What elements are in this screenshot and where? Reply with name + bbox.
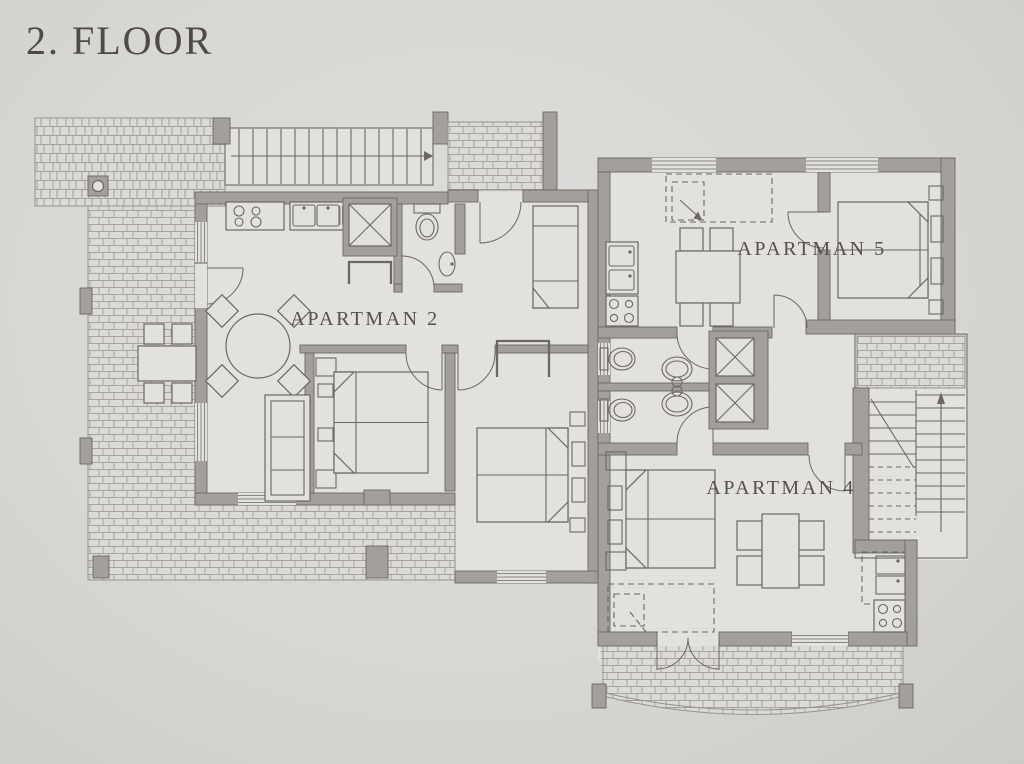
chair-icon: [710, 228, 733, 251]
stove-icon: [874, 600, 905, 632]
floor-plan: 2. FLOOR: [0, 0, 1024, 764]
stove-icon: [226, 202, 284, 230]
elevator-shaft-icon: [709, 331, 768, 429]
chair-icon: [799, 556, 824, 585]
apartment-2-label: APARTMAN 2: [290, 308, 439, 330]
pilaster: [592, 684, 606, 708]
chair-icon: [144, 324, 164, 344]
terrace-column: [88, 176, 108, 196]
pilaster: [80, 438, 92, 464]
straight-staircase-icon: [213, 112, 448, 185]
pilaster: [80, 288, 92, 314]
chair-icon: [680, 303, 703, 326]
chair-icon: [737, 521, 762, 550]
scanned-floor-plan-page: 2. FLOOR: [0, 0, 1024, 764]
chair-icon: [680, 228, 703, 251]
pilaster: [366, 546, 388, 578]
stove-icon: [606, 296, 638, 326]
apartment-2-block: APARTMAN 2: [35, 112, 602, 583]
kitchen-sink-icon: [290, 202, 344, 230]
stair-landing: [448, 112, 557, 190]
pilaster: [899, 684, 913, 708]
kitchen-sink-icon: [606, 242, 638, 294]
chair-icon: [737, 556, 762, 585]
balcony-icon: [592, 646, 913, 715]
apartment-4-label: APARTMAN 4: [706, 477, 855, 499]
chair-icon: [172, 324, 192, 344]
pilaster: [93, 556, 109, 578]
right-block: APARTMAN 5: [592, 158, 968, 715]
single-bed-icon: [533, 206, 578, 308]
sofa-icon: [265, 395, 310, 501]
page-title: 2. FLOOR: [26, 18, 213, 63]
chair-icon: [144, 383, 164, 403]
chair-icon: [799, 521, 824, 550]
chair-icon: [710, 303, 733, 326]
chair-icon: [172, 383, 192, 403]
apartment-5-label: APARTMAN 5: [737, 238, 886, 260]
